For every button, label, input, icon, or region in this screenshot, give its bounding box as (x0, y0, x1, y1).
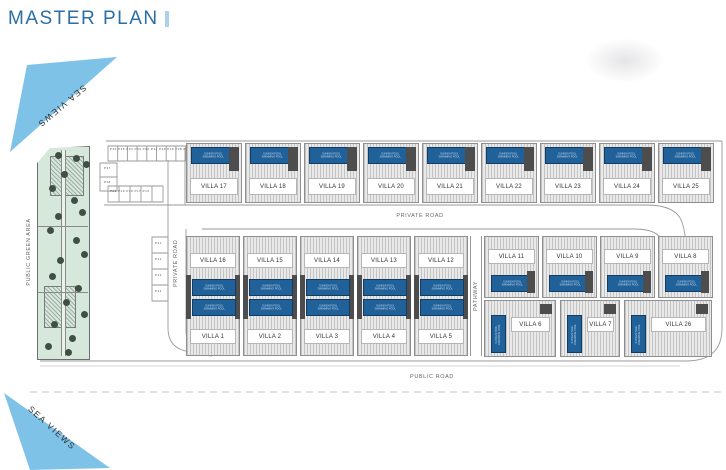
public-green-area-label: PUBLIC GREEN AREA (26, 217, 32, 287)
private-road-horizontal-label: PRIVATE ROAD (380, 213, 460, 219)
roof-shape (643, 271, 651, 293)
villa-block-17: SUNKEN POOLSWIMMING POOLVILLA 17 (186, 143, 242, 203)
villa-label: VILLA 18 (249, 178, 297, 195)
roof-shape (406, 147, 416, 171)
parking-label-p42: P42 (155, 258, 162, 261)
villa-block-10: VILLA 10SUNKEN POOLSWIMMING POOL (542, 236, 597, 298)
pool-villa-3: SUNKEN POOLSWIMMING POOL (306, 299, 350, 316)
roof-shape (527, 271, 535, 293)
villa-block-19: SUNKEN POOLSWIMMING POOLVILLA 19 (304, 143, 360, 203)
villa-block-7: SUNKEN POOLSWIMMING POOLVILLA 7 (560, 300, 620, 357)
villa-block-21: SUNKEN POOLSWIMMING POOLVILLA 21 (422, 143, 478, 203)
pool-villa-15: SUNKEN POOLSWIMMING POOL (249, 279, 293, 296)
villa-column-15-2: VILLA 15SUNKEN POOLSWIMMING POOLSUNKEN P… (243, 236, 297, 356)
public-road-label: PUBLIC ROAD (392, 374, 472, 380)
villa-column-12-5: VILLA 12SUNKEN POOLSWIMMING POOLSUNKEN P… (414, 236, 468, 356)
roof-shape (524, 147, 534, 171)
pool-villa-1: SUNKEN POOLSWIMMING POOL (192, 299, 236, 316)
roof-shape (288, 147, 298, 171)
roof-shape (642, 147, 652, 171)
villa-block-8: VILLA 8SUNKEN POOLSWIMMING POOL (658, 236, 713, 298)
villa-label: VILLA 12 (418, 253, 464, 268)
villa-label: VILLA 7 (587, 317, 614, 332)
villa-label: VILLA 1 (190, 329, 236, 344)
parking-row-mid (108, 186, 163, 202)
roof-shape (583, 147, 593, 171)
villa-label: VILLA 8 (662, 249, 709, 264)
roof-shape (465, 147, 475, 171)
villa-label: VILLA 21 (426, 178, 474, 195)
villa-label: VILLA 3 (304, 329, 350, 344)
villa-label: VILLA 22 (485, 178, 533, 195)
roof-shape (186, 275, 191, 319)
villa-label: VILLA 14 (304, 253, 350, 268)
parking-label-p38: P38 (104, 181, 111, 184)
villa-label: VILLA 9 (604, 249, 651, 264)
villa-label: VILLA 2 (247, 329, 293, 344)
villa-block-20: SUNKEN POOLSWIMMING POOLVILLA 20 (363, 143, 419, 203)
villa-block-25: SUNKEN POOLSWIMMING POOLVILLA 25 (658, 143, 714, 203)
villa-label: VILLA 23 (544, 178, 592, 195)
pool-villa-26: SUNKEN POOLSWIMMING POOL (631, 315, 646, 353)
villa-label: VILLA 20 (367, 178, 415, 195)
villa-label: VILLA 15 (247, 253, 293, 268)
villa-column-14-3: VILLA 14SUNKEN POOLSWIMMING POOLSUNKEN P… (300, 236, 354, 356)
roof-shape (357, 275, 362, 319)
parking-label-p41: P41 (155, 242, 162, 245)
villa-block-6: SUNKEN POOLSWIMMING POOLVILLA 6 (484, 300, 556, 357)
pool-villa-4: SUNKEN POOLSWIMMING POOL (363, 299, 407, 316)
parking-labels-top: P36 P35 P34 P33 P32 P31 P30 P29 P28 P27 (110, 148, 190, 151)
villa-label: VILLA 24 (603, 178, 651, 195)
pool-villa-6: SUNKEN POOLSWIMMING POOL (491, 315, 506, 353)
villa-block-11: VILLA 11SUNKEN POOLSWIMMING POOL (484, 236, 539, 298)
pool-villa-7: SUNKEN POOLSWIMMING POOL (567, 315, 582, 353)
villa-block-18: SUNKEN POOLSWIMMING POOLVILLA 18 (245, 143, 301, 203)
pool-villa-12: SUNKEN POOLSWIMMING POOL (420, 279, 464, 296)
pool-villa-13: SUNKEN POOLSWIMMING POOL (363, 279, 407, 296)
villa-column-16-1: VILLA 16SUNKEN POOLSWIMMING POOLSUNKEN P… (186, 236, 240, 356)
villa-label: VILLA 25 (662, 178, 710, 195)
road-linework (0, 0, 726, 470)
roof-shape (701, 271, 709, 293)
villa-label: VILLA 19 (308, 178, 356, 195)
roof-shape (347, 147, 357, 171)
villa-label: VILLA 13 (361, 253, 407, 268)
parking-labels-mid: P20 P19 P18 P17 P16 (110, 190, 150, 193)
villa-column-13-4: VILLA 13SUNKEN POOLSWIMMING POOLSUNKEN P… (357, 236, 411, 356)
villa-label: VILLA 26 (651, 317, 706, 332)
roof-shape (701, 147, 711, 171)
villa-label: VILLA 17 (190, 178, 238, 195)
pool-villa-14: SUNKEN POOLSWIMMING POOL (306, 279, 350, 296)
roof-shape (300, 275, 305, 319)
villa-block-9: VILLA 9SUNKEN POOLSWIMMING POOL (600, 236, 655, 298)
villa-label: VILLA 6 (511, 317, 550, 332)
parking-label-p44: P44 (155, 290, 162, 293)
roof-shape (604, 304, 616, 314)
roof-shape (540, 304, 552, 314)
villa-label: VILLA 10 (546, 249, 593, 264)
roof-shape (585, 271, 593, 293)
roof-shape (243, 275, 248, 319)
villa-label: VILLA 5 (418, 329, 464, 344)
villa-block-24: SUNKEN POOLSWIMMING POOLVILLA 24 (599, 143, 655, 203)
parking-label-p37: P37 (104, 167, 111, 170)
villa-block-26: SUNKEN POOLSWIMMING POOLVILLA 26 (624, 300, 712, 357)
roof-shape (696, 304, 708, 314)
master-plan-page: MASTER PLAN SEA VIEWS SEA VIEWS (0, 0, 726, 470)
pool-villa-5: SUNKEN POOLSWIMMING POOL (420, 299, 464, 316)
villa-label: VILLA 4 (361, 329, 407, 344)
parking-label-p43: P43 (155, 274, 162, 277)
roof-shape (414, 275, 419, 319)
roof-shape (229, 147, 239, 171)
villa-block-22: SUNKEN POOLSWIMMING POOLVILLA 22 (481, 143, 537, 203)
pool-villa-16: SUNKEN POOLSWIMMING POOL (192, 279, 236, 296)
pool-villa-2: SUNKEN POOLSWIMMING POOL (249, 299, 293, 316)
villa-label: VILLA 16 (190, 253, 236, 268)
villa-label: VILLA 11 (488, 249, 535, 264)
villa-block-23: SUNKEN POOLSWIMMING POOLVILLA 23 (540, 143, 596, 203)
pathway-label: PATHWAY (473, 279, 479, 313)
private-road-vertical-label: PRIVATE ROAD (173, 247, 179, 287)
